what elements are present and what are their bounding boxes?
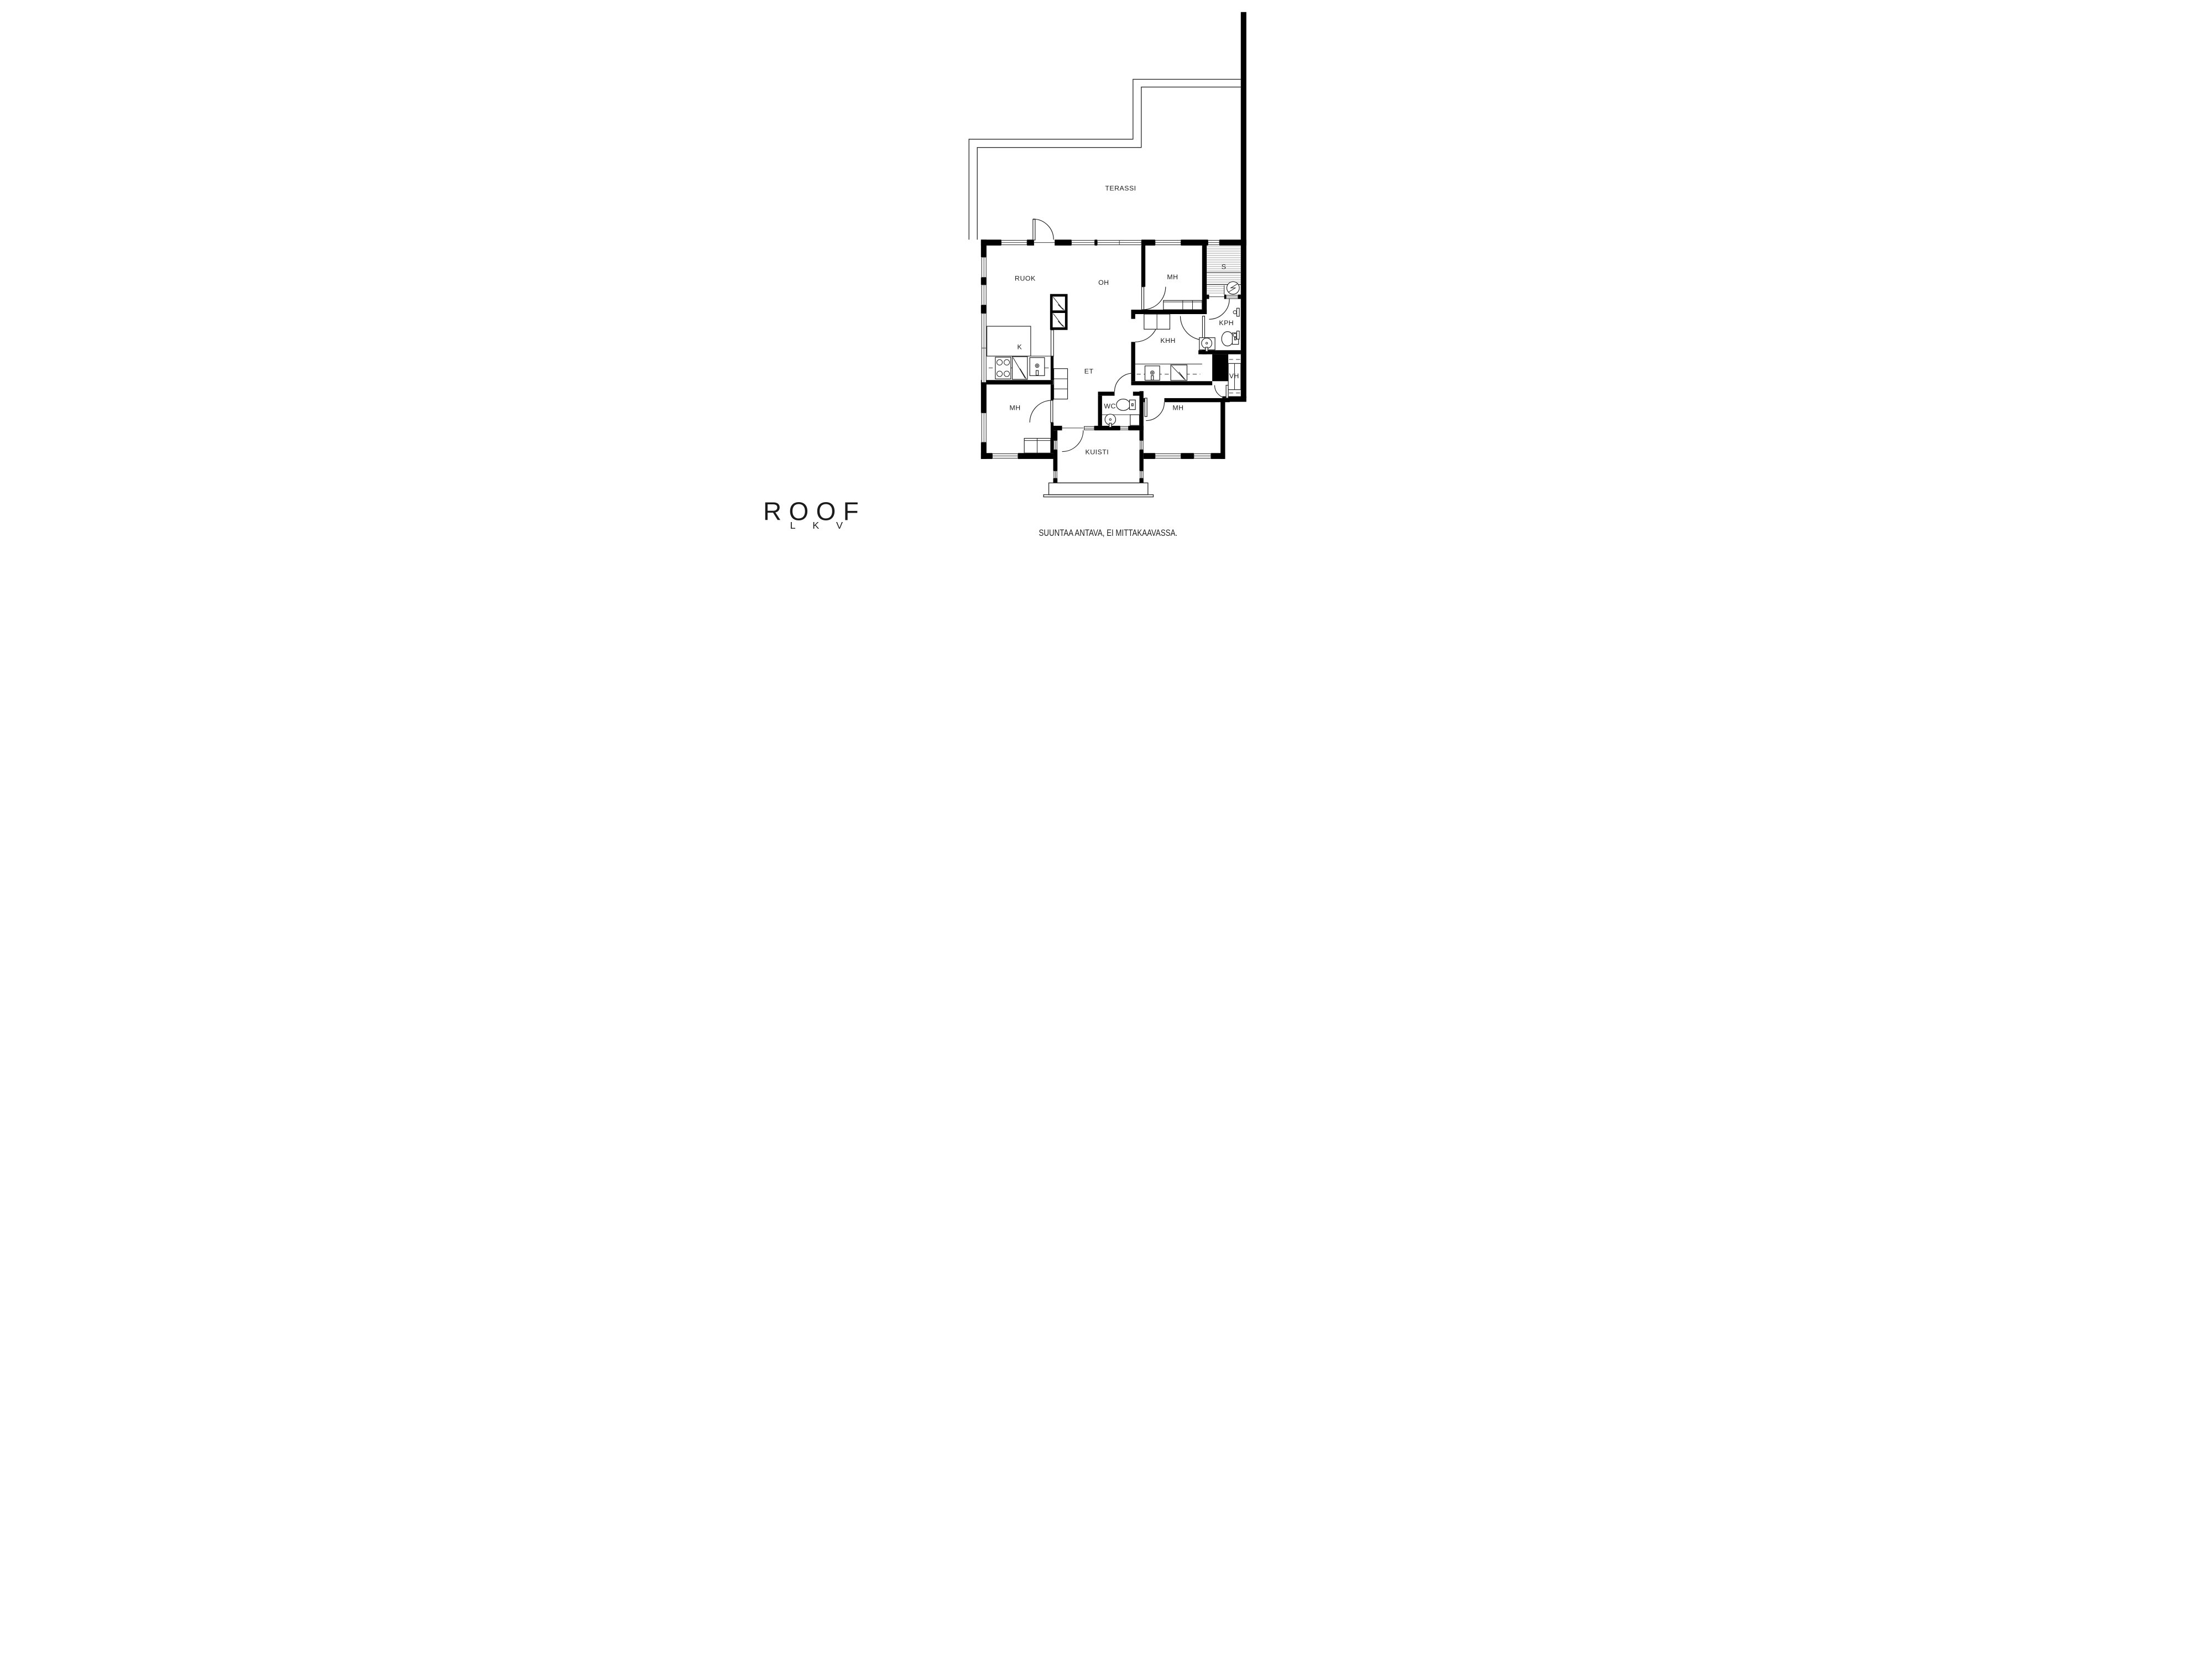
room-label-mh-top: MH — [1167, 273, 1178, 281]
mh-right-door — [1145, 398, 1164, 421]
window — [1155, 454, 1181, 458]
wc-washbasin-icon — [1102, 414, 1139, 427]
doors — [1030, 219, 1229, 452]
roof-lkv-logo: ROOF LKV — [763, 497, 865, 531]
window — [992, 454, 1018, 458]
kitchen-counter — [987, 356, 1053, 379]
wc-door — [1114, 373, 1133, 392]
logo-sub: LKV — [790, 520, 859, 531]
room-label-et: ET — [1084, 367, 1093, 375]
window — [1155, 241, 1181, 245]
room-label-k: K — [1017, 343, 1022, 351]
window — [1053, 471, 1056, 478]
wardrobe-mh-left — [1024, 439, 1051, 453]
room-label-wc: WC — [1104, 403, 1116, 410]
window — [1226, 295, 1238, 299]
room-label-khh: KHH — [1160, 337, 1176, 345]
stove-icon — [995, 357, 1010, 379]
window — [982, 285, 986, 305]
window — [1193, 454, 1211, 458]
room-label-terassi: TERASSI — [1105, 185, 1136, 192]
window — [1071, 241, 1094, 245]
sauna-stove-icon — [1227, 281, 1239, 294]
wc-toilet-icon — [1116, 399, 1135, 411]
floorplan-drawing: TERASSI RUOK OH MH S KPH KHH K ET VH MH … — [738, 0, 1475, 553]
window — [1120, 426, 1128, 430]
room-label-kph: KPH — [1219, 319, 1234, 327]
khh-kph-door — [1180, 316, 1204, 340]
shower-icon — [1233, 308, 1239, 316]
dishwasher-icon — [1012, 357, 1027, 379]
window — [982, 314, 986, 383]
fireplace-icon — [1050, 294, 1067, 356]
kph-washbasin-icon — [1199, 338, 1214, 352]
terrace-outline — [969, 79, 1241, 239]
room-label-mh-left: MH — [1009, 404, 1020, 411]
window — [1140, 441, 1142, 450]
vh-door — [1214, 385, 1228, 398]
kitchen-island — [987, 326, 1030, 356]
room-label-sauna: S — [1221, 263, 1226, 271]
khh-appliances — [1135, 314, 1202, 380]
khh-dryer-icon — [1171, 365, 1187, 380]
window — [1208, 241, 1219, 245]
room-label-mh-right: MH — [1172, 404, 1183, 411]
kph-fixtures — [1199, 308, 1239, 351]
window — [982, 413, 986, 442]
room-label-oh: OH — [1098, 279, 1109, 286]
window — [982, 257, 986, 278]
khh-sink-icon — [1145, 366, 1160, 380]
window — [1001, 241, 1027, 245]
mh-left-door — [1030, 400, 1053, 422]
mh-top-door — [1141, 287, 1165, 310]
window — [1140, 471, 1142, 478]
room-label-kuisti: KUISTI — [1085, 448, 1109, 456]
footer-disclaimer: SUUNTAA ANTAVA, EI MITTAKAAVASSA. — [1039, 528, 1177, 539]
porch-steps — [1044, 483, 1153, 497]
room-label-vh: VH — [1229, 372, 1239, 380]
sink-icon — [1030, 358, 1045, 376]
front-door — [1062, 428, 1083, 452]
sauna-door — [1209, 297, 1229, 320]
floorplan-page: TERASSI RUOK OH MH S KPH KHH K ET VH MH … — [738, 0, 1475, 553]
window — [1053, 441, 1056, 450]
room-label-ruok: RUOK — [1015, 274, 1036, 282]
terrace-door — [1032, 219, 1054, 243]
hall-closet — [1053, 369, 1067, 399]
window — [1097, 241, 1141, 245]
window — [1084, 426, 1094, 430]
wardrobe-mh-top — [1163, 300, 1202, 310]
